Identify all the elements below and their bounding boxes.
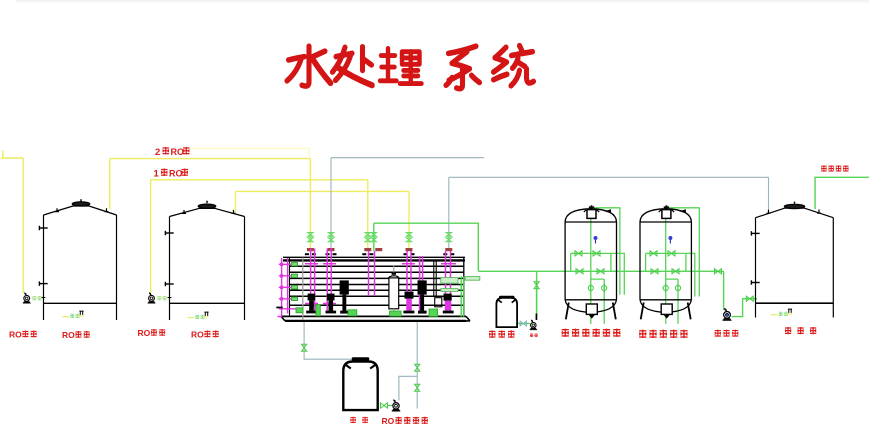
svg-text:RO: RO <box>62 330 75 340</box>
svg-text:RO: RO <box>171 147 185 157</box>
svg-text:2: 2 <box>155 147 160 158</box>
svg-text:RO: RO <box>138 328 151 338</box>
svg-text:RO: RO <box>191 330 204 340</box>
svg-text:RO: RO <box>9 330 22 340</box>
svg-text:RO: RO <box>382 416 395 425</box>
svg-text:1: 1 <box>154 169 160 180</box>
svg-text:RO: RO <box>169 169 183 179</box>
